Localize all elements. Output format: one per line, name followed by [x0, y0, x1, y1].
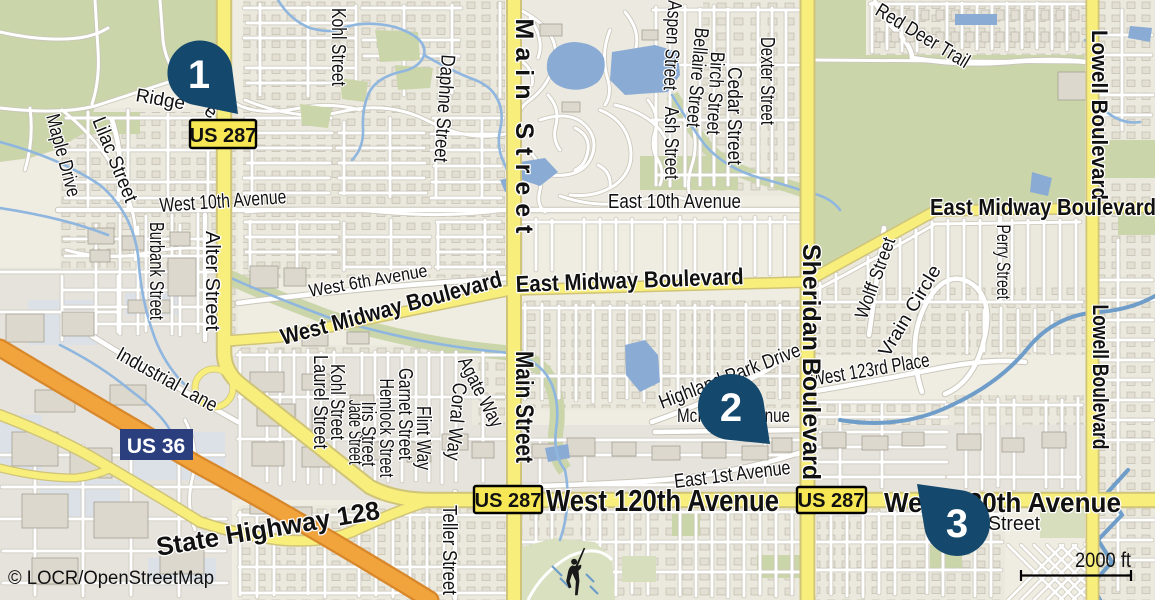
svg-text:East Midway Boulevard: East Midway Boulevard: [930, 194, 1155, 220]
svg-text:US 287: US 287: [798, 490, 865, 512]
svg-text:© LOCR/OpenStreetMap: © LOCR/OpenStreetMap: [8, 567, 214, 589]
svg-text:Cedar Street: Cedar Street: [723, 67, 745, 165]
svg-text:West 120th Avenue: West 120th Avenue: [546, 483, 779, 518]
svg-text:Lowell Boulevard: Lowell Boulevard: [1087, 30, 1112, 200]
svg-text:Ash Street: Ash Street: [660, 107, 682, 180]
svg-text:Flint Way: Flint Way: [412, 406, 434, 470]
svg-text:3: 3: [946, 502, 968, 546]
svg-text:1: 1: [188, 53, 210, 97]
svg-text:US 36: US 36: [127, 435, 185, 458]
svg-text:Main Street: Main Street: [510, 351, 538, 464]
svg-text:2: 2: [720, 386, 742, 430]
svg-text:US 287: US 287: [475, 490, 542, 512]
svg-text:Kohl Street: Kohl Street: [327, 8, 349, 86]
svg-text:Burbank Street: Burbank Street: [145, 222, 167, 320]
svg-text:Sheridan Boulevard: Sheridan Boulevard: [797, 244, 825, 480]
svg-text:Alter Street: Alter Street: [201, 231, 223, 331]
svg-text:Aspen Street: Aspen Street: [659, 0, 686, 91]
svg-text:Dexter Street: Dexter Street: [756, 37, 778, 125]
svg-text:Teller Street: Teller Street: [438, 505, 460, 595]
svg-text:2000 ft: 2000 ft: [1075, 549, 1131, 572]
svg-text:US 287: US 287: [190, 125, 257, 147]
svg-text:Perry Street: Perry Street: [992, 225, 1013, 301]
svg-text:Hemlock Street: Hemlock Street: [375, 379, 397, 478]
svg-text:Lowell Boulevard: Lowell Boulevard: [1088, 305, 1113, 450]
svg-text:East 10th Avenue: East 10th Avenue: [608, 191, 741, 213]
